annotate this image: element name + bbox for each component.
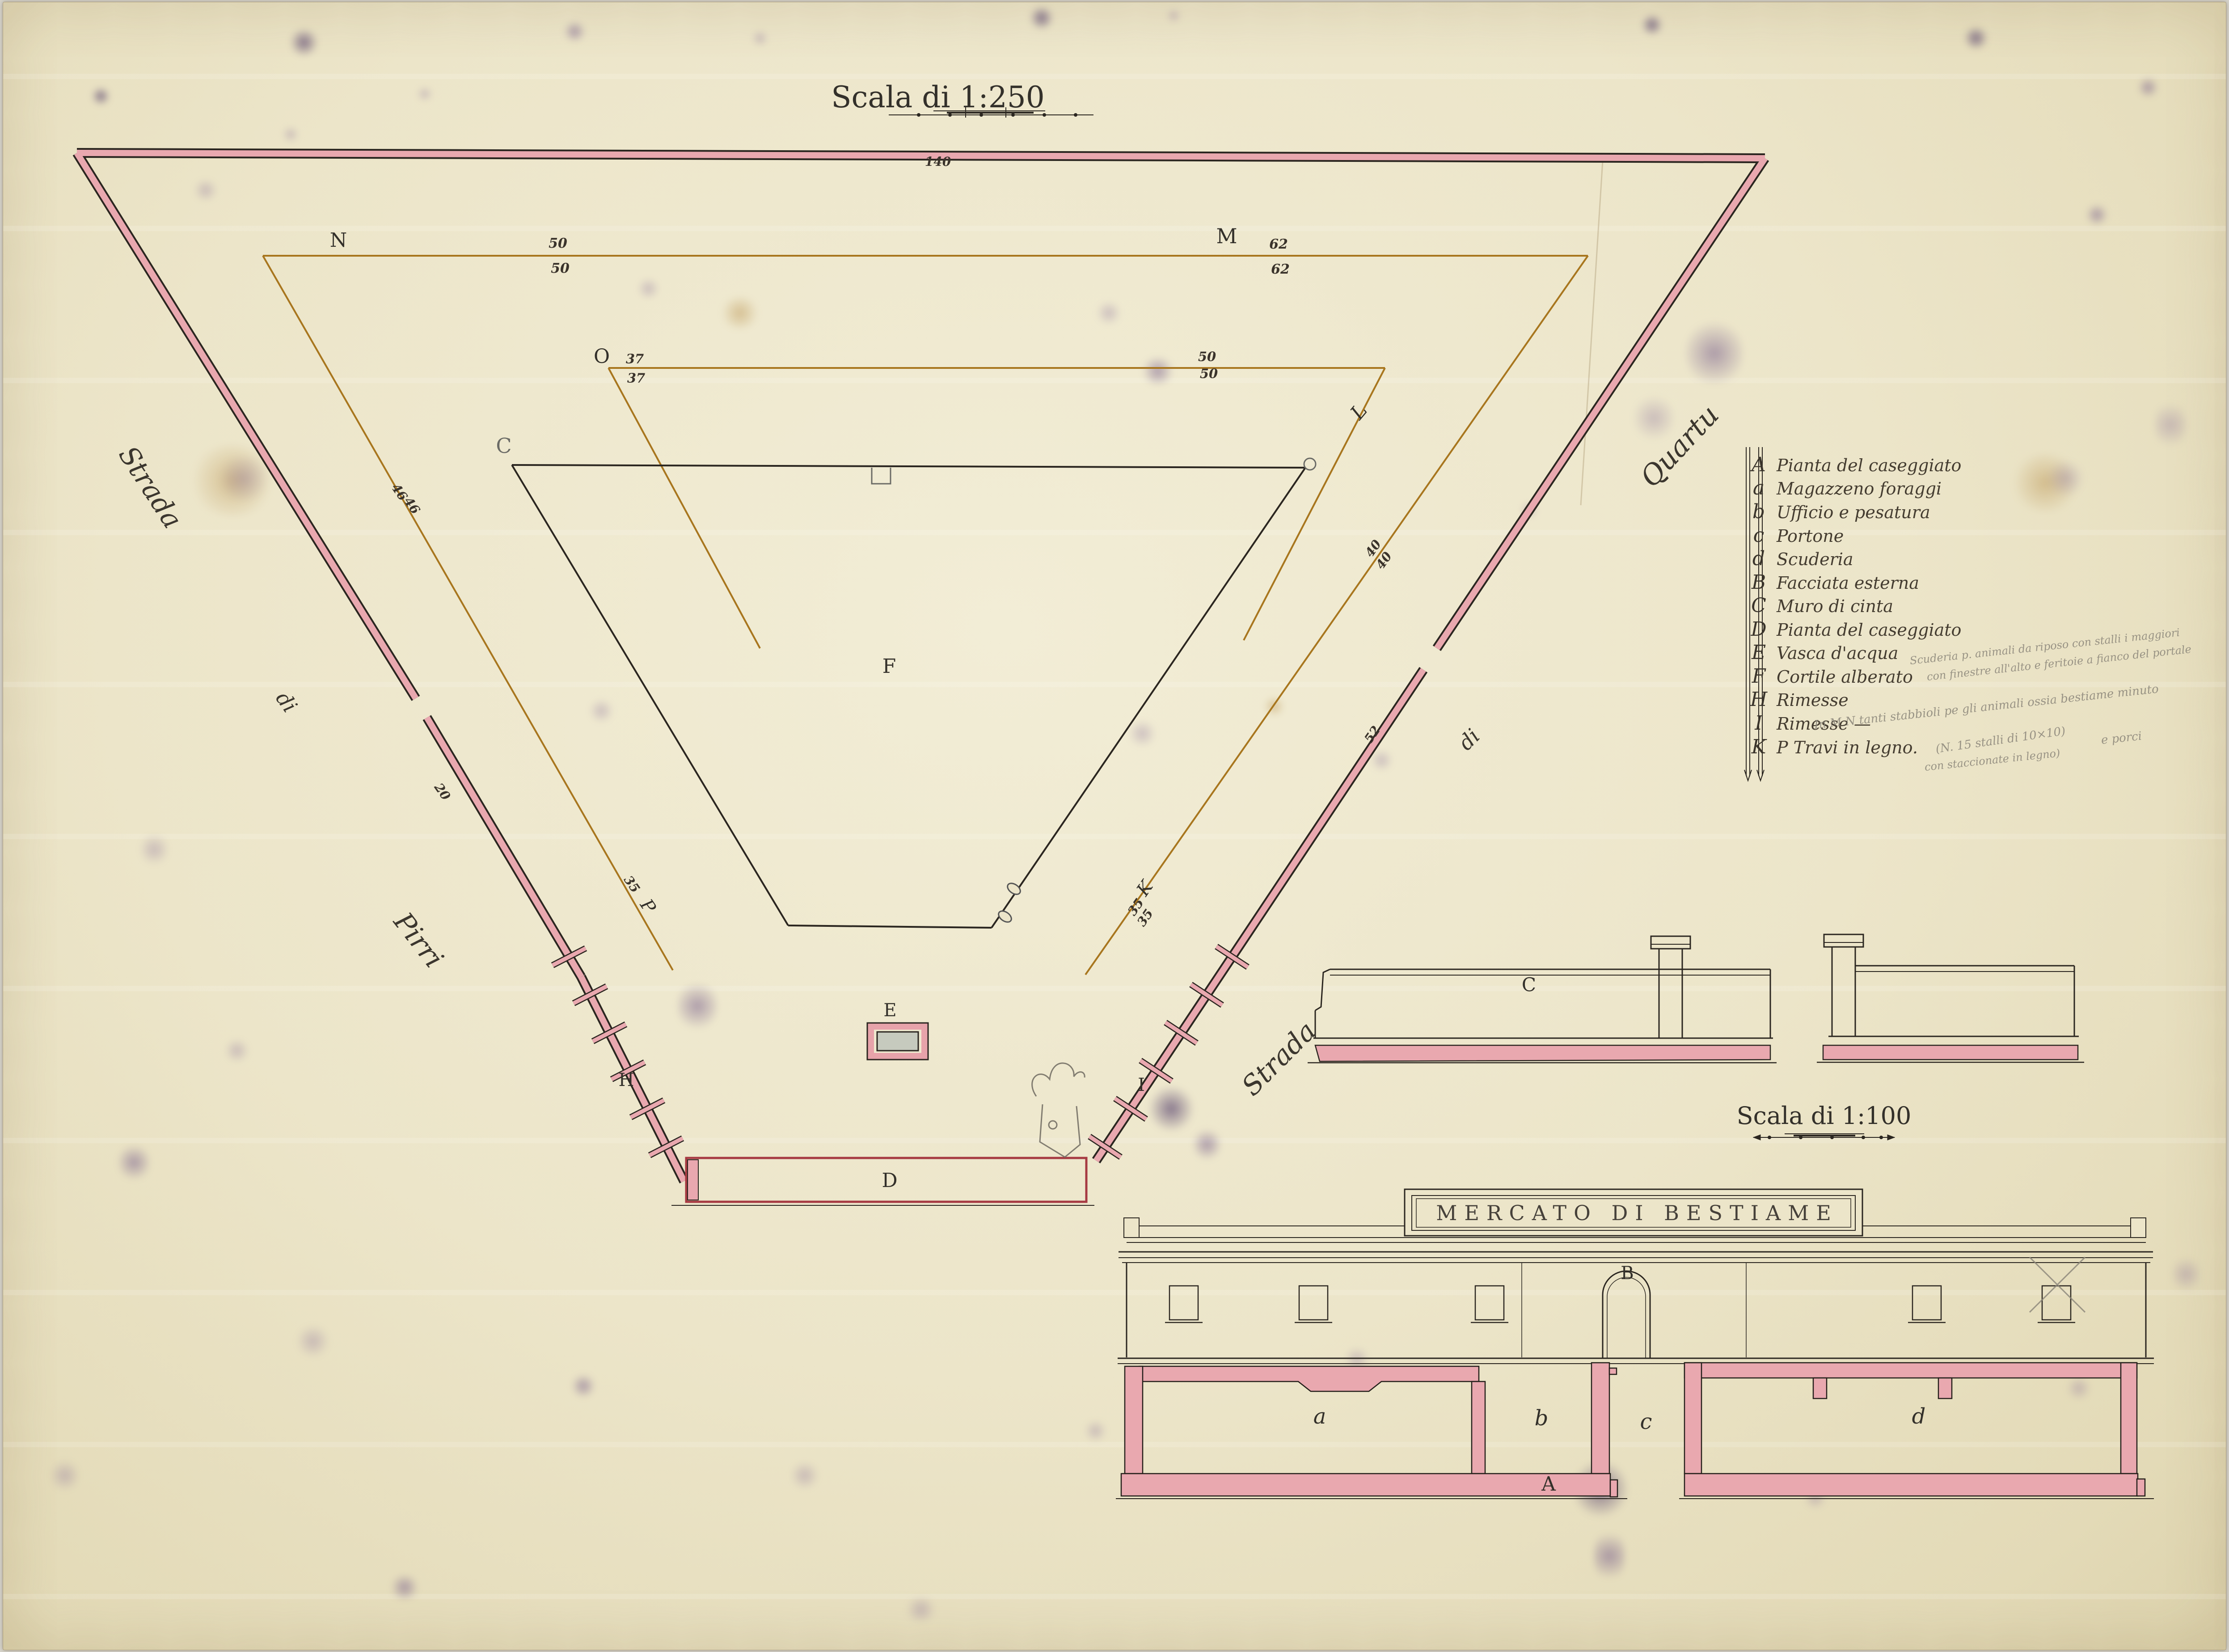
room-a-label: a xyxy=(1313,1406,1326,1427)
legend-row: aMagazzeno foraggi xyxy=(1747,477,1942,499)
label-o: O xyxy=(594,347,610,367)
legend-text: P Travi in legno. xyxy=(1777,738,1918,757)
measure-n-above: 50 xyxy=(549,237,567,250)
legend-key: D xyxy=(1747,618,1770,641)
legend-text: Rimesse xyxy=(1777,690,1849,710)
wall-elevation-label-c: C xyxy=(1522,976,1536,994)
legend-text: Facciata esterna xyxy=(1777,573,1919,593)
measure-inner-below: 50 xyxy=(1200,368,1218,380)
legend-key: I xyxy=(1747,712,1770,735)
scale-250-title: Scala di 1:250 xyxy=(831,83,1045,112)
plan-a-label: A xyxy=(1541,1475,1556,1494)
label-c-corner: C xyxy=(496,435,511,456)
measure-o-below: 37 xyxy=(627,372,645,385)
label-m: M xyxy=(1216,226,1237,246)
legend-key: d xyxy=(1747,547,1770,570)
measure-m-below: 62 xyxy=(1271,263,1290,276)
legend-key: B xyxy=(1747,571,1770,594)
room-b-label: b xyxy=(1535,1407,1549,1429)
label-e-basin: E xyxy=(883,1001,896,1019)
measure-top-length: 140 xyxy=(925,156,951,168)
legend-key: A xyxy=(1747,453,1770,476)
courtyard-trapezoid xyxy=(512,458,1316,928)
legend-row: bUfficio e pesatura xyxy=(1747,500,1930,523)
room-d-label: d xyxy=(1912,1406,1926,1427)
legend-text: Ufficio e pesatura xyxy=(1777,503,1930,522)
label-f-courtyard: F xyxy=(882,657,896,676)
measure-o-above: 37 xyxy=(626,353,644,366)
legend-row: DPianta del caseggiato xyxy=(1747,618,1961,641)
legend-key: C xyxy=(1747,594,1770,617)
scale-bar-100 xyxy=(1753,1134,1895,1140)
scanned-plan-sheet: Scala di 1:250 Scala di 1:100 MERCATO DI… xyxy=(0,0,2229,1652)
legend-row: dScuderia xyxy=(1747,547,1853,570)
legend-key: E xyxy=(1747,641,1770,664)
legend-text: Muro di cinta xyxy=(1777,596,1893,616)
measure-m-above: 62 xyxy=(1269,238,1288,251)
legend-row: cPortone xyxy=(1747,524,1844,547)
legend-text: Pianta del caseggiato xyxy=(1777,456,1961,475)
facade-label-b: B xyxy=(1621,1264,1634,1282)
scale-100-title: Scala di 1:100 xyxy=(1737,1104,1912,1128)
measure-n-below: 50 xyxy=(551,262,570,275)
legend-row: EVasca d'acqua xyxy=(1747,641,1898,664)
facade-banner-text: MERCATO DI BESTIAME xyxy=(1436,1203,1838,1223)
water-basin xyxy=(867,1023,928,1060)
legend-row: HRimesse xyxy=(1747,688,1849,711)
pencil-sketch xyxy=(1032,1063,1085,1157)
wall-elevation-c xyxy=(1308,934,2084,1063)
legend-key: K xyxy=(1747,735,1770,758)
passage-c-label: c xyxy=(1640,1411,1652,1432)
legend-key: a xyxy=(1747,477,1770,499)
legend-text: Pianta del caseggiato xyxy=(1777,620,1961,640)
label-n: N xyxy=(330,231,347,250)
legend-text: Cortile alberato xyxy=(1777,667,1913,687)
label-h-shed: H xyxy=(619,1071,634,1089)
legend-key: F xyxy=(1747,665,1770,688)
legend-row: FCortile alberato xyxy=(1747,665,1913,688)
wooden-fence-lines xyxy=(263,256,1588,975)
legend-text: Portone xyxy=(1777,526,1844,546)
legend-text: Magazzeno foraggi xyxy=(1777,479,1942,499)
legend-text: Scuderia xyxy=(1777,549,1853,569)
legend-text: Vasca d'acqua xyxy=(1777,643,1898,663)
building-plan-a xyxy=(1116,1363,2154,1499)
legend-row: BFacciata esterna xyxy=(1747,571,1919,594)
legend-row: APianta del caseggiato xyxy=(1747,453,1961,476)
label-i-shed: I xyxy=(1138,1076,1145,1094)
legend-key: c xyxy=(1747,524,1770,547)
legend-key: H xyxy=(1747,688,1770,711)
legend-row: CMuro di cinta xyxy=(1747,594,1893,617)
legend-key: b xyxy=(1747,500,1770,523)
label-d-building: D xyxy=(882,1171,897,1191)
measure-inner-above: 50 xyxy=(1198,351,1216,363)
legend-row: KP Travi in legno. xyxy=(1747,735,1918,758)
